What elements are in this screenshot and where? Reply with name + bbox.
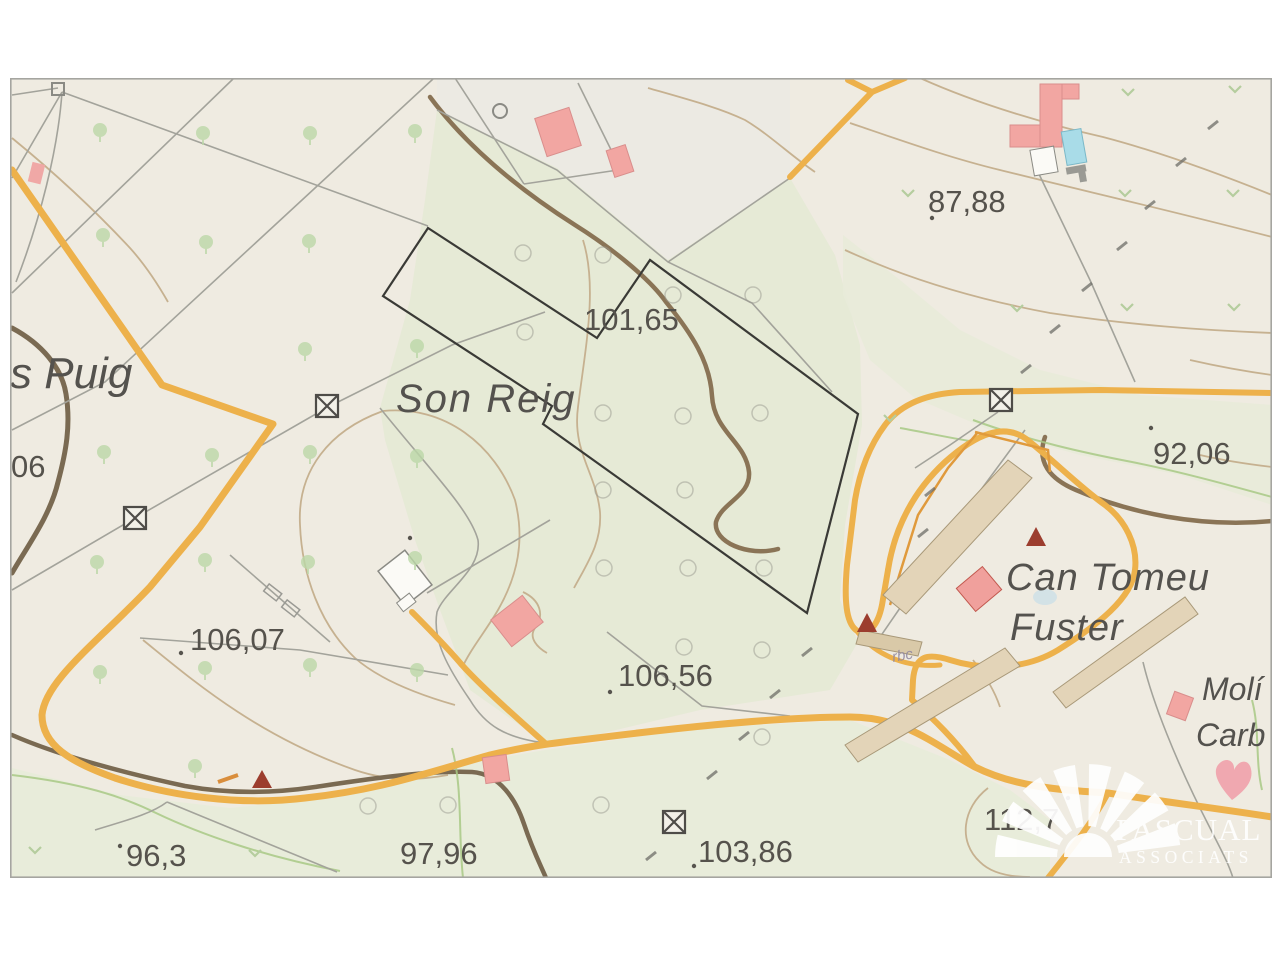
tree-icon <box>91 556 104 569</box>
tree-icon <box>199 554 212 567</box>
watermark-name: PASCUAL <box>1116 812 1261 847</box>
spot-height-dot <box>1149 426 1153 430</box>
tree-icon <box>411 450 424 463</box>
label-fuster: Fuster <box>1010 607 1124 649</box>
label-elevation-101: 101,65 <box>584 302 679 337</box>
label-carb: Carb <box>1196 717 1265 753</box>
well-symbol <box>663 811 685 833</box>
label-elevation-106b: 106,56 <box>618 658 713 693</box>
label-elevation-92: 92,06 <box>1153 436 1231 471</box>
tree-icon <box>299 343 312 356</box>
label-elevation-97: 97,96 <box>400 836 478 871</box>
tree-icon <box>189 760 202 773</box>
listing-map-page: s Puig 06 Son Reig 101,65 87,88 92,06 Ca… <box>0 0 1280 960</box>
label-elevation-partial: 06 <box>11 449 45 484</box>
well-symbol <box>124 507 146 529</box>
building <box>1062 84 1079 99</box>
tree-icon <box>304 659 317 672</box>
spot-height-dot <box>179 651 183 655</box>
tree-icon <box>200 236 213 249</box>
tree-icon <box>304 446 317 459</box>
tree-icon <box>409 552 422 565</box>
tree-icon <box>302 556 315 569</box>
label-elevation-96: 96,3 <box>126 838 186 873</box>
building-outline <box>1030 146 1058 176</box>
building <box>482 754 509 783</box>
tree-icon <box>304 127 317 140</box>
tree-icon <box>411 664 424 677</box>
label-can-tomeu: Can Tomeu <box>1006 557 1210 599</box>
map-canvas: s Puig 06 Son Reig 101,65 87,88 92,06 Ca… <box>10 78 1272 878</box>
label-moli: Molí <box>1202 671 1266 707</box>
tree-icon <box>303 235 316 248</box>
spot-height-dot <box>408 536 412 540</box>
tree-icon <box>199 662 212 675</box>
tree-icon <box>197 127 210 140</box>
label-elevation-87: 87,88 <box>928 184 1006 219</box>
building <box>1040 84 1062 147</box>
label-son-reig: Son Reig <box>396 377 577 421</box>
topographic-map: s Puig 06 Son Reig 101,65 87,88 92,06 Ca… <box>10 78 1272 878</box>
spot-height-dot <box>692 864 696 868</box>
tree-icon <box>411 340 424 353</box>
tree-icon <box>94 124 107 137</box>
label-s-puig: s Puig <box>10 349 133 398</box>
tree-icon <box>97 229 110 242</box>
tree-icon <box>98 446 111 459</box>
spot-height-dot <box>608 690 612 694</box>
tree-icon <box>94 666 107 679</box>
label-elevation-103: 103,86 <box>698 834 793 869</box>
tree-icon <box>409 125 422 138</box>
label-elevation-106a: 106,07 <box>190 622 285 657</box>
watermark-subname: ASSOCIATS <box>1119 847 1253 867</box>
well-symbol <box>316 395 338 417</box>
spot-height-dot <box>118 844 122 848</box>
well-symbol <box>990 389 1012 411</box>
tree-icon <box>206 449 219 462</box>
